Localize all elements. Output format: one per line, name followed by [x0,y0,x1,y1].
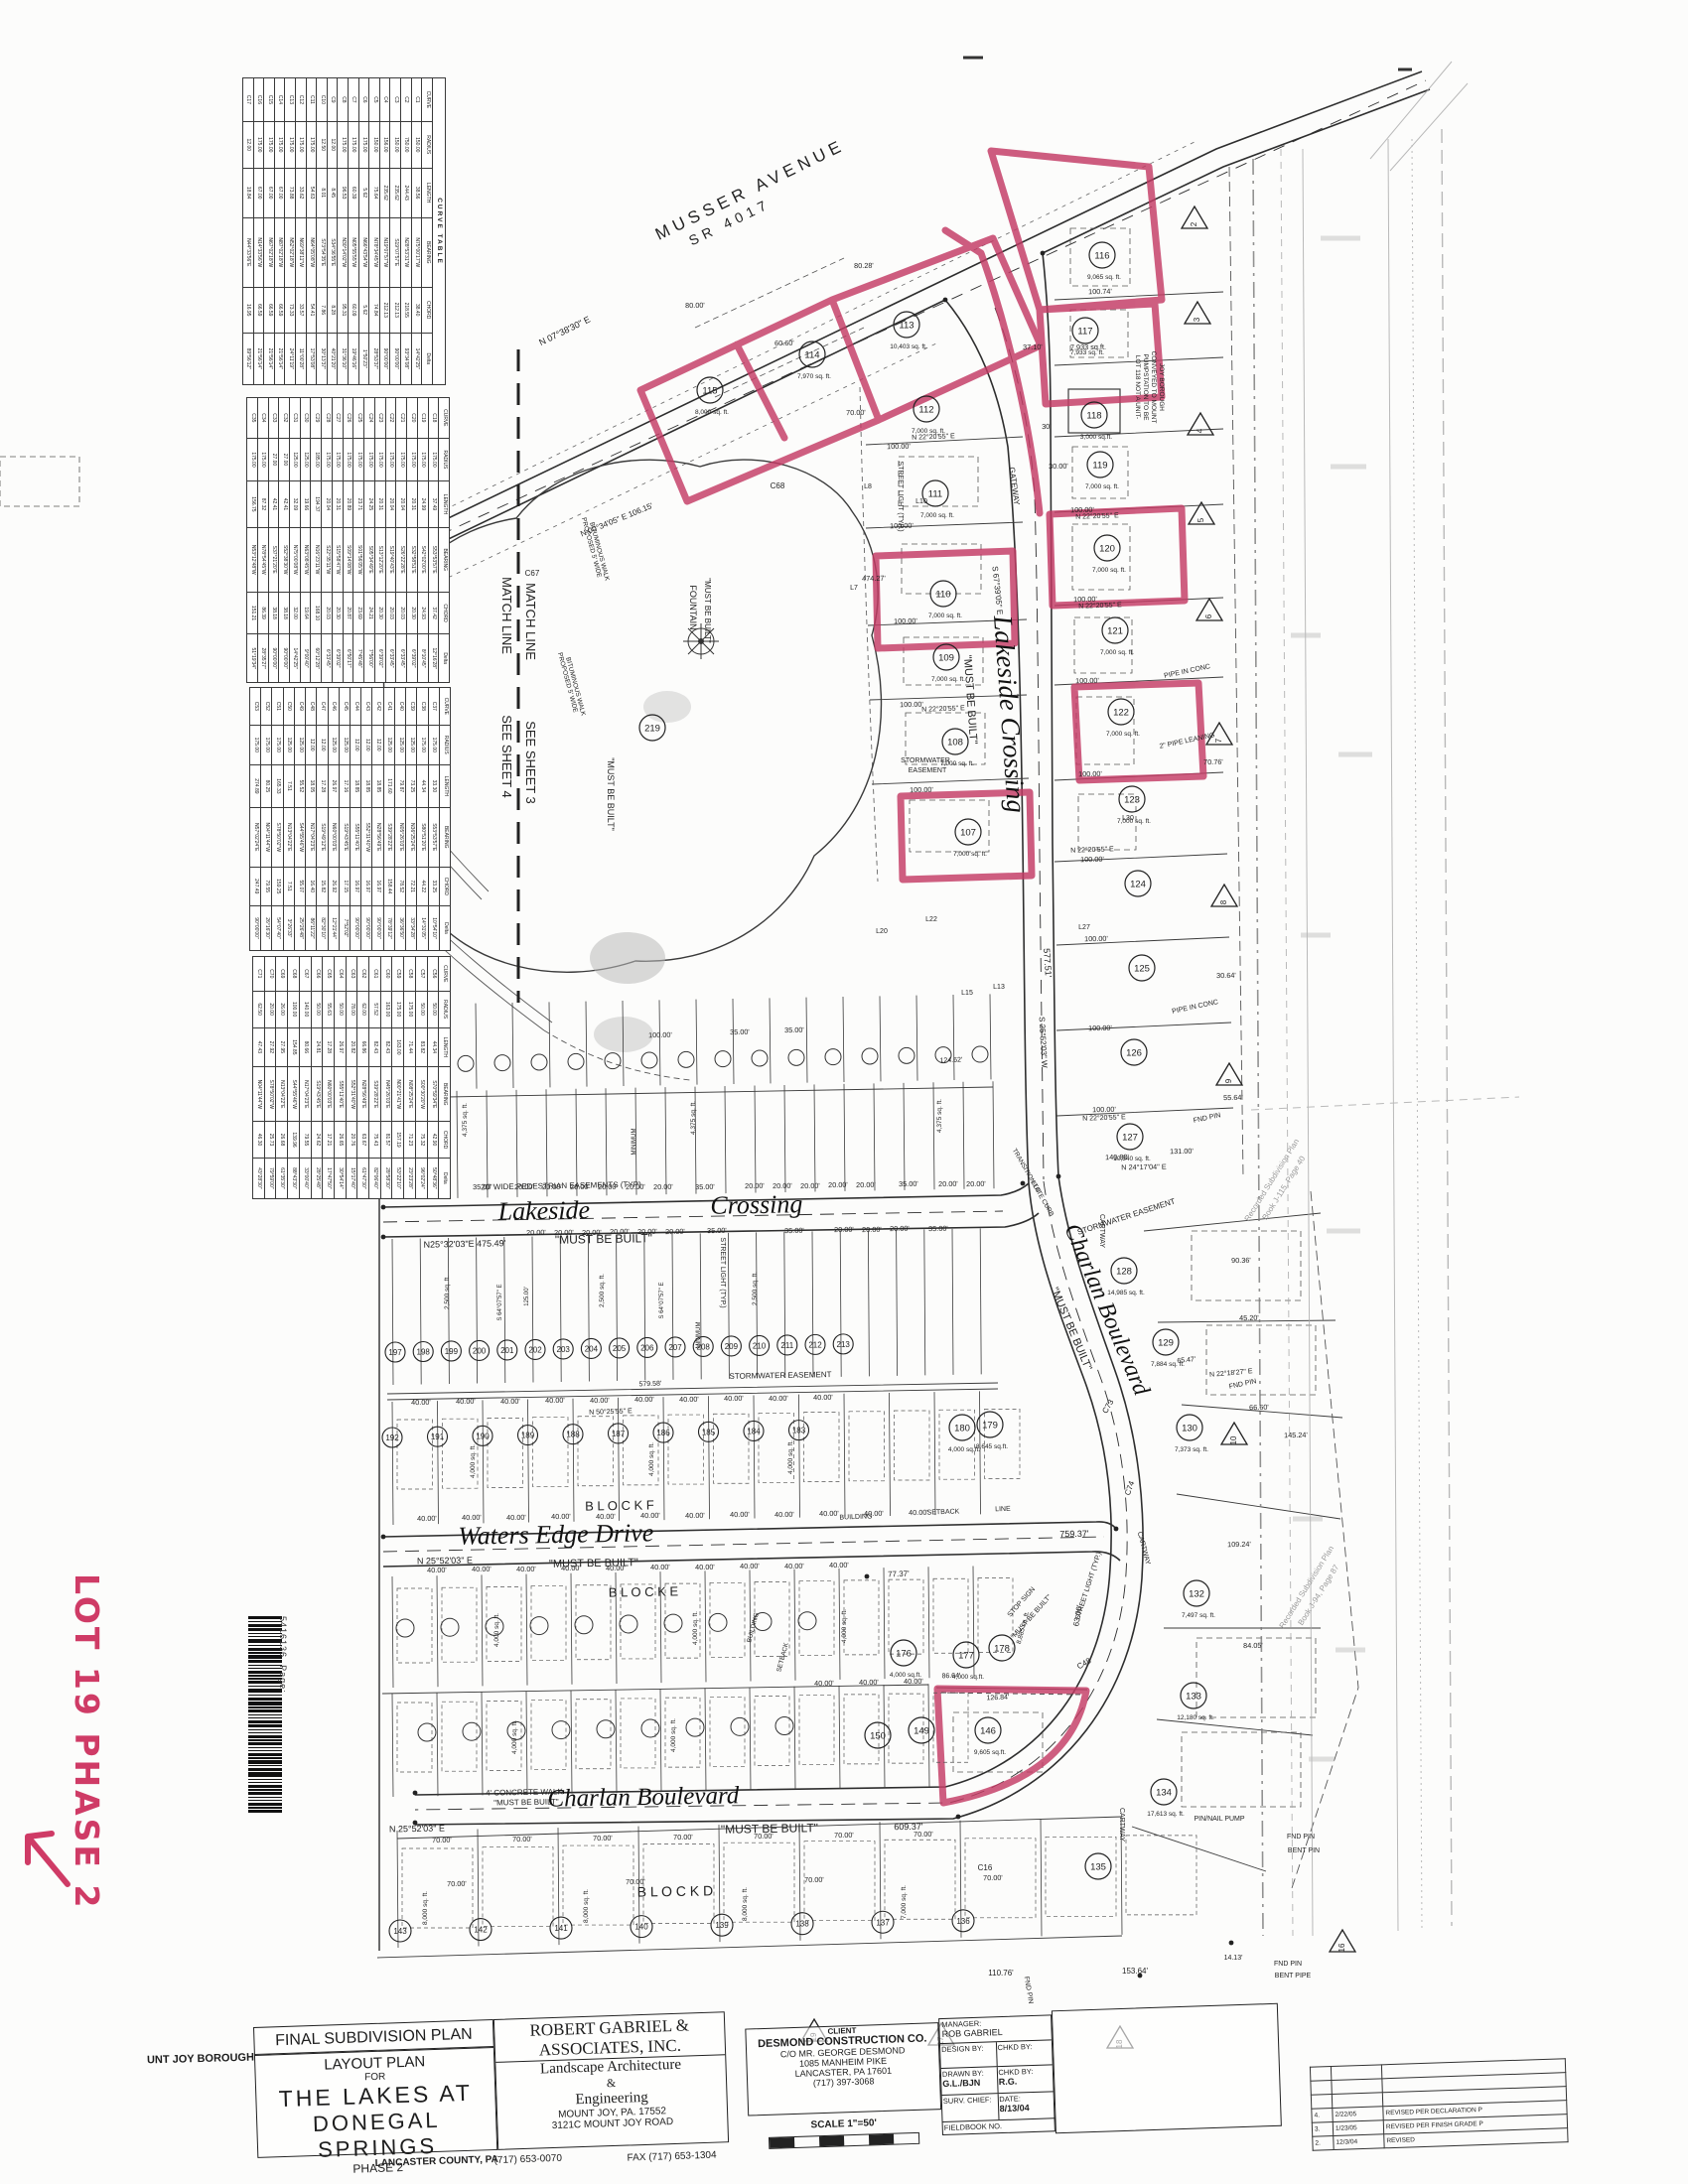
barcode-bar [248,1760,282,1763]
building-setback [755,1697,789,1766]
plan-label: MINIMUM [696,1322,702,1349]
triangle-number: 6 [1204,614,1213,618]
revision-cell-blank [1310,2067,1331,2082]
curve-table-cell: 5.62 [358,287,369,333]
curve-table-cell: 175.00 [417,725,428,764]
barcode-bar [248,1757,282,1759]
curve-table-header: Delta [439,905,450,950]
title-block-empty-box [1052,2003,1282,2133]
plan-label: 2,500 sq. ft. [599,1274,606,1307]
lot-number: 143 [393,1927,407,1936]
barcode-bar [248,1785,282,1788]
plan-label: 8,000 sq. ft. [742,1887,749,1921]
plan-label: STORMWATER EASEMENT [1076,1196,1177,1236]
triangle-number: 4 [1196,428,1204,433]
plan-label: FND PIN [1193,1112,1221,1125]
curve-table-cell: C5 [369,78,380,122]
curve-table-cell: N45°26'03"E [380,1067,392,1122]
triangle-number: 3 [1193,317,1201,322]
plan-label: 126.84' [986,1695,1009,1703]
curve-table-cell: 175.00 [374,438,385,481]
curve-table-cell: C45 [339,688,350,726]
curve-table-cell: 67.00 [253,168,264,217]
dimension-label: 40.00' [456,1397,476,1406]
dimension-label: 100.00' [1092,1105,1116,1114]
dimension-label: 40.00' [819,1509,839,1518]
curve-table-header: LENGTH [422,168,433,217]
curve-table-cell: N78°34'45"W [369,217,380,287]
curve-table-cell: 125.00 [339,725,350,764]
plan-label: 577.51' [1042,948,1054,978]
curve-table-cell: N04°11'44"W [261,807,272,867]
curve-table-cell: 175.00 [428,438,439,481]
plan-label: LOT 118 NOT A UNIT- [1134,355,1141,419]
barcode-bar [248,1695,282,1697]
curve-table-cell: 55.07 [294,867,305,905]
strip-lot-lines [392,1391,981,1525]
plan-label: BENT PIPE [1275,1973,1312,1979]
curve-table-cell: 12.00 [372,725,383,764]
plan-label: S 64°07'57" E [497,1284,503,1320]
plan-label: 8,000 sq. ft. [583,1889,590,1923]
building-setback [1126,1836,1196,1915]
curve-table-cell: 12.00 [361,725,372,764]
plan-label: FND PIN [1287,1834,1315,1841]
dimension-label: 70.00' [983,1873,1003,1882]
curve-table-header: RADIUS [422,121,433,168]
building-setback [799,1581,834,1656]
barcode-bar [248,1652,282,1654]
curve-table-cell: 27.00 [279,438,290,481]
plan-label: BUILDING [746,1612,761,1643]
curve-table-cell: 1°50'23" [358,333,369,384]
curve-table-header: Delta [439,1158,451,1198]
curve-table-cell: C8 [338,78,349,122]
dimension-label: 20.00' [526,1228,546,1237]
plan-label: CARTWAY [1136,1531,1152,1566]
curve-table-cell: C59 [392,957,404,992]
curve-table-cell: C65 [323,957,335,992]
lot-number: 139 [715,1921,729,1930]
curve-table-cell: S52°31'40"W [361,807,372,867]
curve-table-cell: C21 [396,398,407,439]
dimension-label: 40.00' [472,1565,492,1573]
dimension-label: 70.00' [447,1879,467,1888]
lot-number: 189 [521,1432,535,1440]
barcode-bar [248,1702,282,1705]
barcode-bar [248,1665,282,1667]
dimension-label: 100.00' [648,1030,672,1039]
curve-table-cell: 54°07'40" [272,905,283,950]
curve-table-cell: 175.00 [296,121,307,168]
curve-table-cell: 20.87 [343,592,353,634]
lot-number: 134 [1156,1788,1172,1799]
curve-table-cell: S09°14'08"W [343,527,353,592]
curve-table-cell: 159.25 [272,867,283,905]
lot-area: 7,000 sq. ft. [928,613,962,619]
dimension-label: 40.00' [606,1564,626,1572]
dimension-label: 40.00' [730,1510,750,1519]
lot-circle-small [798,1612,816,1630]
dimension-label: 40.00' [561,1564,581,1572]
curve-table-cell: 14°42'25" [289,634,300,683]
curve-table-cell: 26.68 [276,1122,288,1158]
curve-table-cell: C40 [394,688,405,726]
lot-area: 12,180 sq. ft. [1177,1714,1214,1721]
barcode-bar [248,1720,282,1723]
curve-table-cell: 30°54'14" [334,1158,346,1198]
curve-table-cell: 15.82 [317,867,328,905]
curve-table-header: CURVE [422,78,433,122]
curve-table-cell: 57.52 [369,991,381,1027]
barcode-bar [248,1729,282,1731]
chkd-by-label-1: CHKD BY: [996,2040,1052,2066]
curve-table-cell: 66.59 [253,287,264,333]
curve-table-cell: 96°02'24" [415,1158,427,1198]
curve-table-cell: 175.00 [306,121,317,168]
curve-table-cell: 156.00 [379,121,390,168]
lot-number: 113 [899,321,914,332]
plan-label: PIPE IN CONC [1164,663,1211,680]
dimension-label: 40.00' [462,1513,482,1522]
curve-table-cell: C70 [264,957,276,992]
curve-table-cell: 33.62 [296,168,307,217]
dimension-label: 40.00' [740,1562,760,1570]
curve-table-cell: 125.00 [328,725,339,764]
dimension-label: 100.00' [900,700,923,709]
plan-label: PUMPSTATION TO BE [1142,353,1149,421]
curve-table-cell: 40°21'20" [327,333,338,384]
plan-label: S 67°39'05" E [990,566,1004,615]
curve-table-cell: N75°00'17"W [411,217,422,287]
curve-table-cell: 33°00'40" [299,1158,311,1198]
lot-number: 126 [1126,1048,1142,1059]
curve-table-cell: 47.43 [253,1027,265,1066]
curve-table-cell: 175.00 [264,121,275,168]
curve-table-cell: C68 [288,957,300,992]
curve-table-cell: 46.30 [253,1122,265,1158]
plan-label: 2,500 sq. ft. [444,1276,451,1309]
curve-table-cell: 175.00 [332,438,343,481]
curve-table-cell: 74.84 [369,287,380,333]
lot-circle-small [731,1717,749,1735]
curve-table-cell: 8.45 [327,168,338,217]
lot-area: 8,645 sq.ft. [976,1443,1008,1450]
curve-table-cell: S55°11'40"E [351,807,361,867]
plan-label: L20 [876,928,888,935]
barcode-bar [248,1678,282,1680]
curve-table-cell: C60 [380,957,392,992]
dimension-label: 40.00' [724,1394,744,1403]
curve-table-header: BEARING [439,1067,451,1122]
lot-number: 137 [876,1918,890,1927]
plan-label: FND PIN [1274,1961,1302,1968]
curve-table-cell: 26.97 [334,1027,346,1066]
lot-circle-small [641,1052,657,1068]
curve-table-cell: 82°06'40" [369,1158,381,1198]
plan-label: 579.58' [638,1381,661,1389]
curve-table-cell: 66.59 [274,287,285,333]
building-setback [531,1586,566,1661]
curve-table-cell: 28°25'48" [311,1158,323,1198]
plan-label: 63.00' [1071,1604,1084,1627]
dimension-label: 70.00' [626,1877,645,1886]
curve-table-cell: S52°31'40"W [346,1067,357,1122]
curve-table-cell: C53 [250,688,261,726]
lot-number: 128 [1116,1267,1132,1278]
curve-table-cell: 82.43 [369,1027,381,1066]
curve-table-cell: N53°12'48"W [247,527,258,592]
curve-table-cell: 20.04 [322,481,333,527]
curve-table-cell: 6°33'45" [396,634,407,683]
curve-table-cell: C15 [264,78,275,122]
lot-circle-small [899,1047,914,1063]
curve-table-cell: 12.00 [243,121,254,168]
curve-table-cell: 24°11'19" [285,333,296,384]
curve-table-cell: N87°02'18"W [274,217,285,287]
curve-table-cell: 17.15 [339,867,350,905]
curve-table-cell: 14°42'25" [411,333,422,384]
lot-area: 7,000 sq. ft. [931,676,965,683]
barcode-bar [248,1681,282,1684]
curve-table-cell: C27 [332,398,343,439]
curve-table-cell: 7°52'02" [339,905,350,950]
plan-label: N 22°20'55" E [1082,1113,1126,1123]
lot-number: 115 [702,386,717,397]
curve-table-cell: 53°22'10" [392,1158,404,1198]
lot-area: 7,000 sq. ft. [920,512,954,519]
lot-circle-small [441,1618,459,1636]
dimension-label: 145.24' [1284,1431,1308,1439]
curve-table-header: LENGTH [439,481,450,527]
curve-table-cell: 42.90 [427,1122,439,1158]
curve-table-cell: 24.62 [311,1122,323,1158]
triangle-number: 16 [1337,1943,1346,1952]
curve-table-cell: 75.43 [369,1122,381,1158]
dimension-label: 474.27' [862,574,886,583]
dimension-label: 140.88' [1105,1153,1129,1161]
curve-table-cell: 20.04 [385,481,396,527]
curve-table-cell: 8.01 [317,168,328,217]
curve-table-cell: 175.00 [353,438,364,481]
lot-number: 149 [914,1726,929,1737]
curve-table-cell: N75°00'08"W [289,527,300,592]
barcode-bar [248,1732,282,1734]
plan-label: L8 [864,483,872,490]
curve-table-cell: S53°53'57"E [428,527,439,592]
curve-table-cell: 20.30 [407,592,418,634]
curve-table-cell: 16.97 [361,867,372,905]
dimension-label: 70.00' [512,1835,532,1843]
dimension-label: 20.00' [828,1180,848,1189]
curve-table-cell: 175.00 [364,438,375,481]
plan-label: N 22°20'55" E [921,704,965,714]
plan-label: 125.00' [524,1287,530,1306]
curve-table-header: CURVE [439,957,451,992]
plan-label: 110.76' [988,1969,1014,1978]
dimension-label: 40.00' [904,1677,923,1686]
curve-table-cell: N28°56'49"E [357,1067,369,1122]
curve-table-cell: 7°56'00" [364,634,375,683]
lot-number: 197 [388,1348,402,1357]
dimension-label: N 24°17'04" E [1121,1162,1167,1172]
curve-table-cell: 26.65 [334,1122,346,1158]
curve-table-cell: C57 [415,957,427,992]
curve-table-cell: 175.00 [274,121,285,168]
curve-table-cell: 6°39'02" [332,634,343,683]
curve-table-cell: S73°54'35"E [317,217,328,287]
lot-circle-small [597,1720,615,1738]
lot-number: 142 [474,1926,488,1935]
curve-table-cell: 19.66 [300,481,311,527]
plan-label: STREET LIGHT (TYP.) [719,1237,726,1307]
curve-table-cell: 175.00 [428,725,439,764]
triangle-number: 10 [1229,1435,1238,1444]
dimension-label: 40.00' [516,1565,536,1573]
curve-table-cell: 19.64 [300,592,311,634]
dimension-label: 80.00' [685,301,705,310]
lot-number: 122 [1113,708,1129,719]
lot-area: 7,000 sq. ft. [1085,483,1119,490]
curve-table-cell: 38.18 [268,592,279,634]
barcode-bar [248,1648,282,1651]
curve-table-cell: 7.51 [283,764,294,807]
curve-table-cell: N69°38'11"W [296,217,307,287]
curve-table-cell: 125.00 [283,725,294,764]
dimension-label: 70.00' [804,1875,824,1884]
plan-label: L7 [850,585,858,592]
curve-table-cell: 93°34'08" [400,333,411,384]
curve-table-cell: 78°39'12" [383,905,394,950]
lot-number: 125 [1134,964,1150,975]
curve-table-header: LENGTH [439,764,450,807]
dimension-label: 70.76' [1203,757,1223,766]
curve-table-cell: 43°28'30" [253,1158,265,1198]
curve-table-cell: C34 [257,398,268,439]
curve-table-cell: 42.41 [268,481,279,527]
curve-table-cell: S55°11'40"E [334,1067,346,1122]
building-setback [576,1585,611,1660]
curve-table-cell: 61°47'30" [357,1158,369,1198]
curve-table-cell: S00°30'20"W [415,1067,427,1122]
curve-table-4: CURVERADIUSLENGTHBEARINGCHORDDeltaC5650.… [252,956,495,1155]
plan-label: L30 [1122,815,1134,822]
lot-number: 123 [1124,795,1140,806]
lot-number: 191 [431,1433,445,1441]
plan-label: N 22°20'55" E [912,432,955,442]
dimension-label: 40.00' [427,1566,447,1574]
lot-number: 176 [896,1649,912,1660]
plan-label: EASEMENT [909,767,947,774]
triangle-number: 5 [1196,517,1205,522]
revision-cell: 3. [1312,2122,1333,2137]
curve-table-cell: 175.00 [322,438,333,481]
curve-table-cell: 15°17'40" [346,1158,357,1198]
curve-table-cell: S44°55'46"W [288,1067,300,1122]
curve-table-cell: 7.51 [283,867,294,905]
curve-table-cell: C66 [311,957,323,992]
lot-circle-small [972,1046,988,1062]
curve-table-cell: 30°13'37" [317,333,328,384]
curve-table-cell: N57°02'24"E [250,807,261,867]
curve-table-cell: 175.00 [404,991,416,1027]
plan-label: L13 [993,984,1005,991]
dimension-label: 35.00' [899,1179,918,1188]
curve-table-cell: 20.03 [322,592,333,634]
barcode-bar [248,1645,282,1647]
triangle-number: 2 [1190,221,1198,226]
design-by-label: DESIGN BY: [940,2042,997,2068]
plan-label: STORMWATER EASEMENT [729,1370,831,1381]
building-setback [397,1703,432,1772]
curve-table-cell: C20 [407,398,418,439]
curve-table-cell: 175.00 [392,991,404,1027]
curve-table-cell: N67°02'18"W [264,217,275,287]
curve-table-cell: 20.30 [374,592,385,634]
building-setback [397,1588,432,1663]
dimension-label: 70.00' [754,1832,774,1841]
barcode-bar [248,1633,282,1635]
curve-table-cell: 50°48'36" [427,1158,439,1198]
building-setback [488,1418,523,1487]
plan-label: 4,000 sq. ft. [670,1718,677,1752]
curve-table-cell: C30 [300,398,311,439]
plan-label: N 50°25'55" E [589,1407,633,1417]
plan-label: PIN/NAIL PUMP [1194,1816,1244,1823]
plan-label: L22 [925,916,937,923]
lot-number: 212 [808,1340,822,1349]
curve-table-cell: 16.97 [351,867,361,905]
curve-table-cell: N17°04'23"E [299,1067,311,1122]
curve-table-cell: C3 [390,78,401,122]
scale-bar [769,2132,919,2149]
lot-number: 192 [385,1433,399,1442]
registration-marks [963,58,1412,69]
barcode-bar [248,1724,282,1727]
curve-table-cell: C41 [383,688,394,726]
plan-label: S 25°52'03" W [1038,1017,1050,1068]
barcode-bar [248,1636,282,1638]
curve-table-title: CURVE TABLE [432,78,445,385]
lot-number: 178 [994,1644,1010,1655]
strip-lot-lines [392,1566,974,1688]
curve-table-cell: N17°04'23"E [306,807,317,867]
curve-table-cell: 150.00 [369,121,380,168]
plan-label: 4,000 sq. ft. [511,1720,518,1754]
plan-label: N 07°38'30" E [537,315,592,348]
lot-number: 118 [1086,411,1101,422]
lot-area: 9,065 sq. ft. [1087,274,1121,281]
curve-table-cell: 31°36'10" [338,333,349,384]
barcode-bar [248,1797,282,1799]
lot-number: 183 [792,1427,806,1435]
curve-table-cell: C32 [279,398,290,439]
barcode-bar [248,1772,282,1777]
lot-area: 7,497 sq. ft. [1182,1612,1215,1619]
plan-label: 759.37' [1059,1529,1089,1540]
building-setback [710,1582,745,1657]
lot-circle-small [531,1054,547,1070]
lot-area: 8,000 sq. ft. [695,409,729,416]
curve-table-cell: 8°10'45" [417,634,428,683]
curve-table-cell: C16 [253,78,264,122]
curve-table-cell: C12 [296,78,307,122]
curve-table-cell: 24.81 [311,1027,323,1066]
curve-table-cell: N04°11'44"W [253,1067,265,1122]
curve-table-cell: N05°26'03"E [394,807,405,867]
curve-table-cell: 90°00'00" [390,333,401,384]
building-setback [710,1697,745,1766]
